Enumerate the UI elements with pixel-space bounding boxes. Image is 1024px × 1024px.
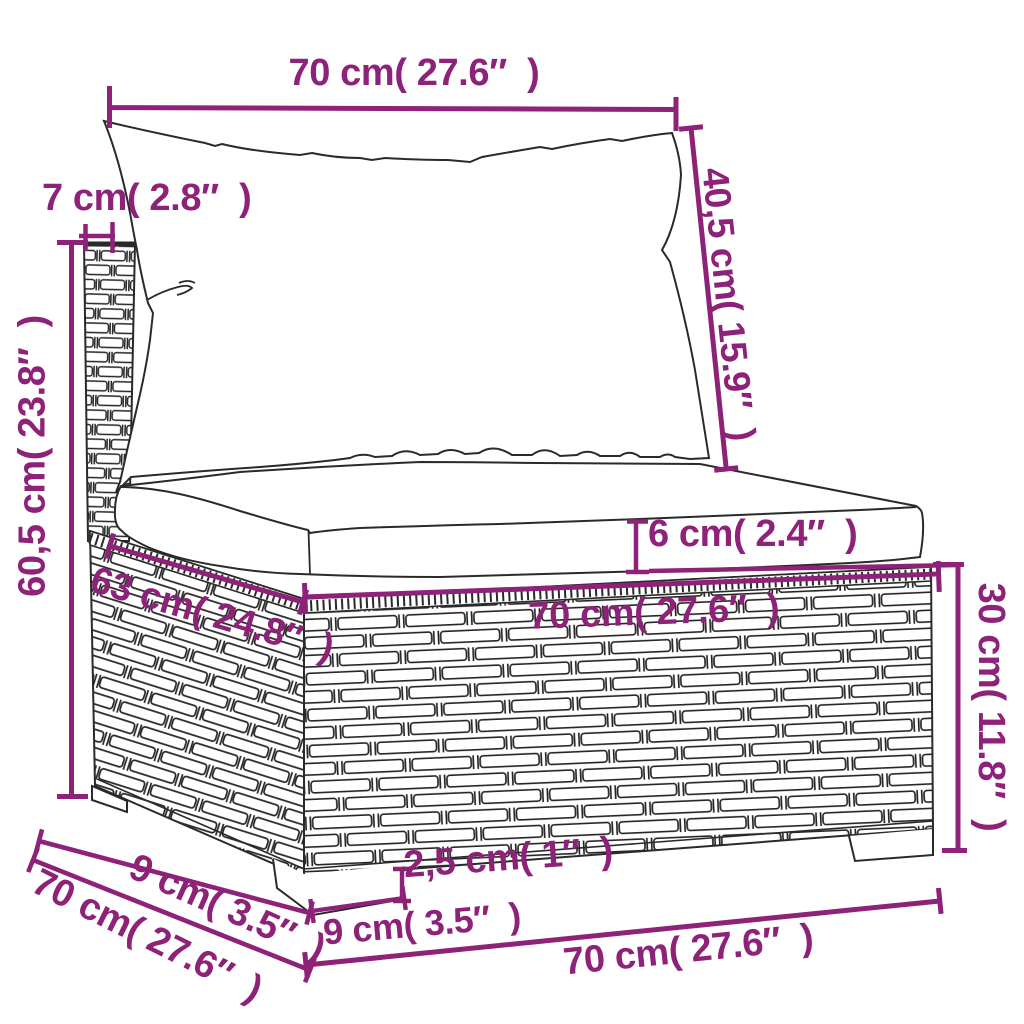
svg-text:7 cm( 2.8″ ): 7 cm( 2.8″ ) <box>42 177 251 219</box>
svg-text:6 cm( 2.4″ ): 6 cm( 2.4″ ) <box>648 513 857 555</box>
svg-text:30 cm( 11.8″ ): 30 cm( 11.8″ ) <box>970 583 1012 832</box>
svg-text:70 cm( 27.6″ ): 70 cm( 27.6″ ) <box>289 52 540 94</box>
svg-text:60,5 cm( 23.8″ ): 60,5 cm( 23.8″ ) <box>12 315 54 597</box>
